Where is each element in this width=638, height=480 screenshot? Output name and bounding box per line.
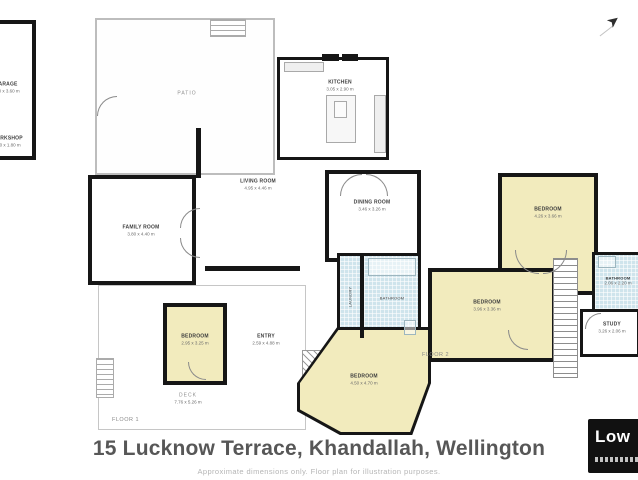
- room-dims: 4.50 x 4.70 m: [350, 380, 378, 386]
- room-label-deck: DECK 7.76 x 5.26 m: [174, 393, 201, 406]
- room-label-entry: ENTRY 2.59 x 4.88 m: [252, 334, 279, 347]
- room-name: GARAGE: [0, 82, 20, 89]
- toilet: [404, 320, 416, 335]
- wall-segment: [196, 128, 201, 178]
- bedroom4-room: [428, 268, 556, 362]
- room-name: ENTRY: [252, 334, 279, 341]
- room-label-bathroom2: BATHROOM 2.06 x 2.20 m: [604, 275, 631, 286]
- floor2-label: FLOOR 2: [422, 352, 449, 358]
- room-label-garage: GARAGE 5.90 x 3.60 m: [0, 82, 20, 95]
- agency-logo: Low: [588, 419, 638, 473]
- room-dims: 5.90 x 3.60 m: [0, 88, 20, 94]
- bathroom2-vanity: [598, 256, 616, 268]
- floorplan-page: ➤ GARAGE 5.90 x 3.60 m WORKSHOP 2.70 x 1…: [0, 0, 638, 480]
- room-name: FAMILY ROOM: [123, 225, 160, 232]
- room-name: KITCHEN: [326, 80, 353, 87]
- room-label-family: FAMILY ROOM 3.80 x 4.40 m: [123, 225, 160, 238]
- agency-logo-subline: [595, 457, 638, 462]
- room-label-bedroom3: BEDROOM 4.26 x 3.66 m: [534, 207, 562, 220]
- room-label-patio: PATIO: [177, 91, 196, 98]
- wall-segment: [342, 54, 358, 61]
- room-label-living: LIVING ROOM 4.95 x 4.46 m: [240, 179, 276, 192]
- bathtub: [368, 258, 416, 276]
- room-label-study: STUDY 3.26 x 2.06 m: [598, 322, 625, 335]
- wall-segment: [322, 54, 339, 61]
- room-label-bathroom1: BATHROOM: [380, 295, 404, 300]
- room-label-bedroom1: BEDROOM 2.95 x 3.25 m: [181, 334, 209, 347]
- kitchen-sink: [334, 101, 347, 118]
- wall-segment: [360, 256, 364, 338]
- room-name: WORKSHOP: [0, 136, 23, 143]
- north-arrow-icon: ➤: [603, 10, 624, 32]
- room-name: DECK: [174, 393, 201, 400]
- room-name: BEDROOM: [473, 300, 501, 307]
- kitchen-counter: [284, 62, 324, 72]
- room-label-bedroom4: BEDROOM 3.96 x 3.36 m: [473, 300, 501, 313]
- room-label-workshop: WORKSHOP 2.70 x 1.80 m: [0, 136, 23, 149]
- room-label-laundry: LAUNDRY: [348, 287, 353, 307]
- room-name: DINING ROOM: [354, 200, 391, 207]
- room-dims: 2.70 x 1.80 m: [0, 142, 23, 148]
- room-label-bedroom2: BEDROOM 4.50 x 4.70 m: [350, 374, 378, 387]
- plan-disclaimer: Approximate dimensions only. Floor plan …: [0, 467, 638, 476]
- room-label-kitchen: KITCHEN 3.05 x 2.90 m: [326, 80, 353, 93]
- stairs-floor2: [553, 258, 578, 378]
- room-name: BEDROOM: [534, 207, 562, 214]
- room-dims: 2.06 x 2.20 m: [604, 281, 631, 287]
- room-dims: 4.95 x 4.46 m: [240, 185, 276, 191]
- room-dims: 3.46 x 3.26 m: [354, 206, 391, 212]
- room-name: PATIO: [177, 91, 196, 98]
- room-name: STUDY: [598, 322, 625, 329]
- room-dims: 3.26 x 2.06 m: [598, 328, 625, 334]
- room-label-dining: DINING ROOM 3.46 x 3.26 m: [354, 200, 391, 213]
- property-address-title: 15 Lucknow Terrace, Khandallah, Wellingt…: [0, 437, 638, 461]
- room-dims: 2.95 x 3.25 m: [181, 340, 209, 346]
- room-name: BEDROOM: [350, 374, 378, 381]
- floor1-label: FLOOR 1: [112, 417, 139, 423]
- room-dims: 3.05 x 2.90 m: [326, 86, 353, 92]
- room-name: LIVING ROOM: [240, 179, 276, 186]
- agency-logo-text: Low: [595, 427, 631, 447]
- patio-steps: [210, 19, 246, 37]
- room-name: BEDROOM: [181, 334, 209, 341]
- room-dims: 3.80 x 4.40 m: [123, 231, 160, 237]
- wall-segment: [205, 266, 300, 271]
- room-dims: 4.26 x 3.66 m: [534, 213, 562, 219]
- room-name: BATHROOM: [380, 295, 404, 300]
- room-dims: 3.96 x 3.36 m: [473, 306, 501, 312]
- room-dims: 7.76 x 5.26 m: [174, 399, 201, 405]
- deck-steps: [96, 358, 114, 398]
- room-dims: 2.59 x 4.88 m: [252, 340, 279, 346]
- kitchen-appliances: [374, 95, 386, 153]
